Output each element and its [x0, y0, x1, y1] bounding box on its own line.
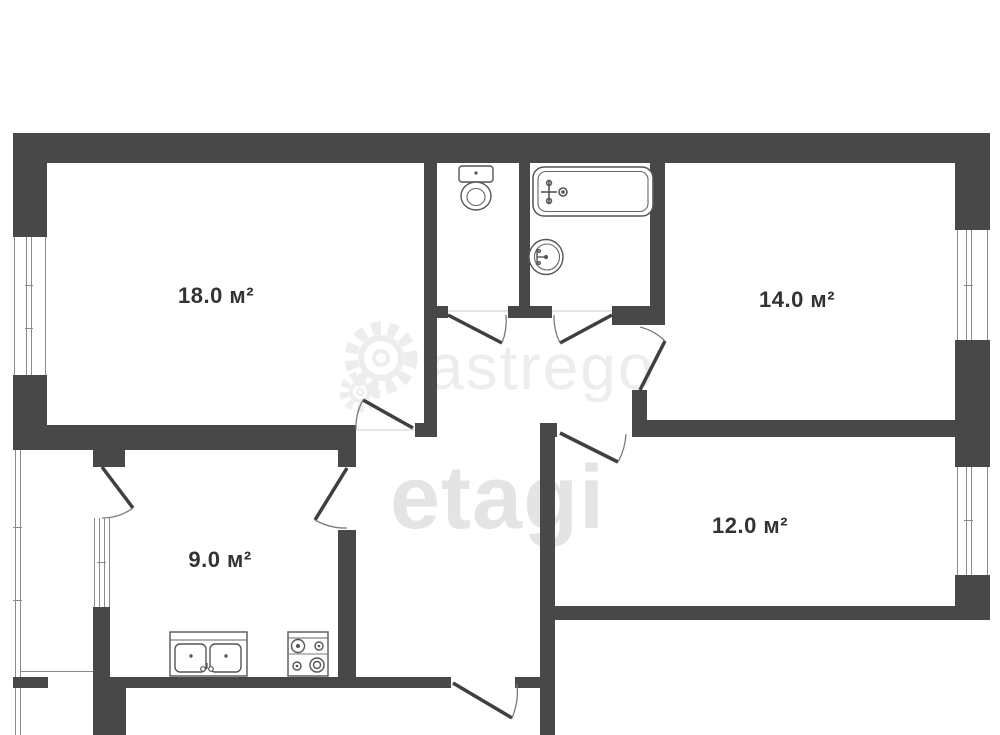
door-kitchen-leaf: [315, 468, 347, 520]
room-label-14: 14.0 м²: [759, 287, 835, 313]
room-label-18: 18.0 м²: [178, 283, 254, 309]
bathtub-fixture: [533, 167, 653, 216]
door-bathroom-leaf: [560, 315, 612, 343]
door-bathroom-arc: [554, 315, 560, 343]
door-balcony-arc: [102, 508, 133, 518]
door-room-12-arc: [618, 434, 626, 462]
door-kitchen-arc: [315, 520, 347, 528]
door-thresholds: [356, 311, 612, 430]
door-wc-leaf: [448, 315, 502, 343]
room-label-kitchen: 9.0 м²: [188, 547, 251, 573]
door-room-18-leaf: [363, 400, 413, 428]
door-room-12-leaf: [560, 433, 618, 462]
toilet-fixture: [459, 166, 493, 210]
doors-and-fixtures: [0, 0, 1000, 735]
wash-basin-fixture: [529, 240, 563, 275]
door-entry-arc: [512, 684, 517, 718]
door-room-14-leaf: [640, 341, 665, 390]
room-label-12: 12.0 м²: [712, 513, 788, 539]
door-balcony-leaf: [102, 467, 133, 508]
door-room-14-arc: [640, 327, 665, 341]
floor-plan: astrego etagi: [0, 0, 1000, 735]
door-entry-leaf: [453, 683, 512, 718]
kitchen-sink-fixture: [170, 632, 247, 676]
door-room-18-arc: [356, 400, 363, 429]
door-wc-arc: [502, 315, 506, 343]
stove-fixture: [288, 632, 328, 676]
